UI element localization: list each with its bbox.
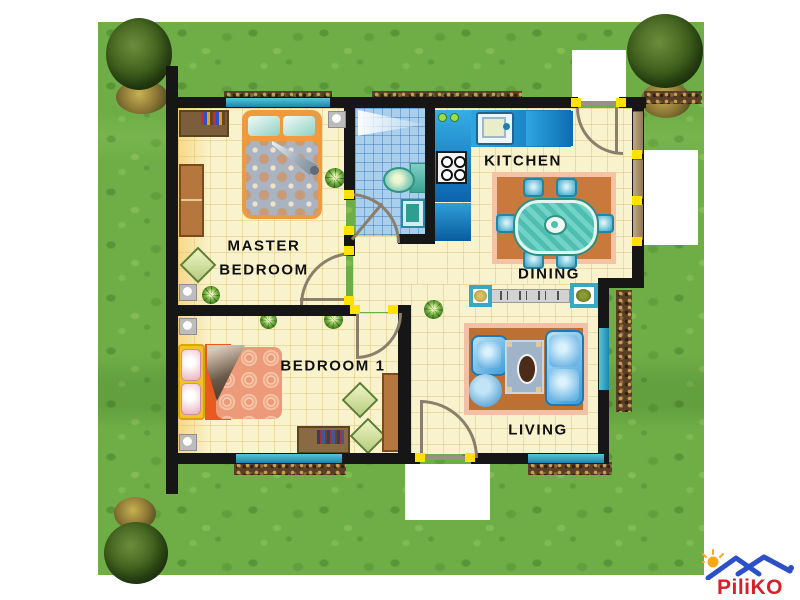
door-jamb (415, 453, 425, 462)
pillow (248, 116, 280, 136)
sun-icon-disc (708, 557, 719, 568)
label-kitchen: KITCHEN (484, 153, 562, 170)
sofa-cushion (549, 369, 579, 401)
window-dining-east-1 (633, 111, 643, 154)
wall-master-bedroom1 (166, 305, 356, 316)
planter-plant (576, 289, 591, 302)
wall-bath-bottom (398, 234, 435, 244)
kitchen-counter-block (526, 111, 573, 146)
plant (202, 286, 220, 304)
door-leaf-bedroom1 (356, 313, 359, 356)
bathroom-sink-basin (406, 204, 419, 222)
armchair-cushion (477, 341, 501, 368)
door-jamb (344, 190, 354, 199)
wall-bath-right (425, 108, 435, 244)
planter-plant (474, 290, 487, 302)
stove-burner (454, 156, 466, 168)
window-living-east (599, 328, 609, 390)
door-jamb (465, 453, 475, 462)
sofa-cushion (549, 335, 579, 367)
label-bedroom1: BEDROOM 1 (280, 358, 385, 375)
window-living-bottom (528, 454, 604, 463)
door-jamb (632, 237, 642, 246)
books-on-desk (317, 430, 344, 444)
pillow (181, 349, 201, 381)
door-jamb (616, 98, 626, 107)
pillow (283, 116, 315, 136)
label-living: LIVING (508, 422, 568, 439)
coffee-table-corner (536, 387, 541, 392)
label-master-line1: MASTER (228, 238, 301, 255)
books-on-dresser (201, 112, 225, 125)
window-dining-east-3 (633, 204, 643, 240)
hedge-right (616, 290, 632, 412)
floor-plan-image: MASTER BEDROOM KITCHEN DINING BEDROOM 1 … (0, 0, 800, 600)
window-bedroom1-bottom (236, 454, 342, 463)
door-jamb (571, 98, 581, 107)
refrigerator (435, 203, 471, 241)
wall-lamp (179, 284, 197, 301)
roof-curl-icon (788, 565, 794, 571)
stove-burner (441, 156, 453, 168)
piliko-logo: PiliKO (702, 548, 798, 598)
pouf (469, 374, 502, 407)
coffee-table-corner (507, 387, 512, 392)
console-decor (481, 291, 563, 300)
coffee-table-corner (536, 342, 541, 347)
wall-lamp (328, 111, 346, 128)
label-dining: DINING (518, 266, 580, 283)
dining-chair (556, 178, 577, 197)
door-jamb (388, 305, 398, 314)
tree-top-left (106, 18, 172, 90)
dining-chair (496, 214, 517, 233)
door-jamb (350, 305, 360, 314)
dining-table-centerpiece-dot (551, 221, 558, 228)
white-patch-right (643, 150, 698, 245)
door-jamb (632, 150, 642, 159)
window-dining-east-2 (633, 159, 643, 199)
threshold-entrance (578, 101, 619, 105)
kitchen-tap (438, 113, 447, 122)
pillow (181, 383, 201, 415)
coffee-table-tray (517, 354, 537, 384)
plant (325, 168, 345, 188)
stove (436, 151, 467, 184)
window-master-top (226, 98, 330, 107)
wall-divider-bedroom1-living (398, 305, 411, 464)
wardrobe-divider (181, 199, 202, 201)
wall-left (166, 66, 178, 494)
blanket-fold-curl (310, 166, 319, 175)
coffee-table-corner (507, 342, 512, 347)
door-jamb (344, 226, 354, 235)
wall-lamp (179, 318, 197, 335)
door-jamb (632, 196, 642, 205)
door-leaf-living (420, 400, 423, 455)
kitchen-faucet (503, 123, 510, 130)
wall-lamp (179, 434, 197, 451)
toilet-bowl (383, 167, 415, 193)
door-jamb (344, 246, 354, 255)
dining-chair (523, 178, 544, 197)
label-master-line2: BEDROOM (219, 262, 309, 279)
tree-top-right (627, 14, 703, 88)
door-leaf-entrance (615, 108, 618, 152)
tree-bottom-left (104, 522, 168, 584)
hedge-top-3 (644, 91, 702, 104)
stove-burner (441, 169, 453, 181)
plant (424, 300, 443, 319)
door-leaf-master (300, 298, 350, 301)
door-jamb (344, 296, 354, 305)
logo-text: PiliKO (702, 576, 798, 600)
stove-burner (454, 169, 466, 181)
kitchen-tap (450, 113, 459, 122)
white-patch-bottom (405, 464, 490, 520)
white-patch-top (572, 50, 626, 105)
